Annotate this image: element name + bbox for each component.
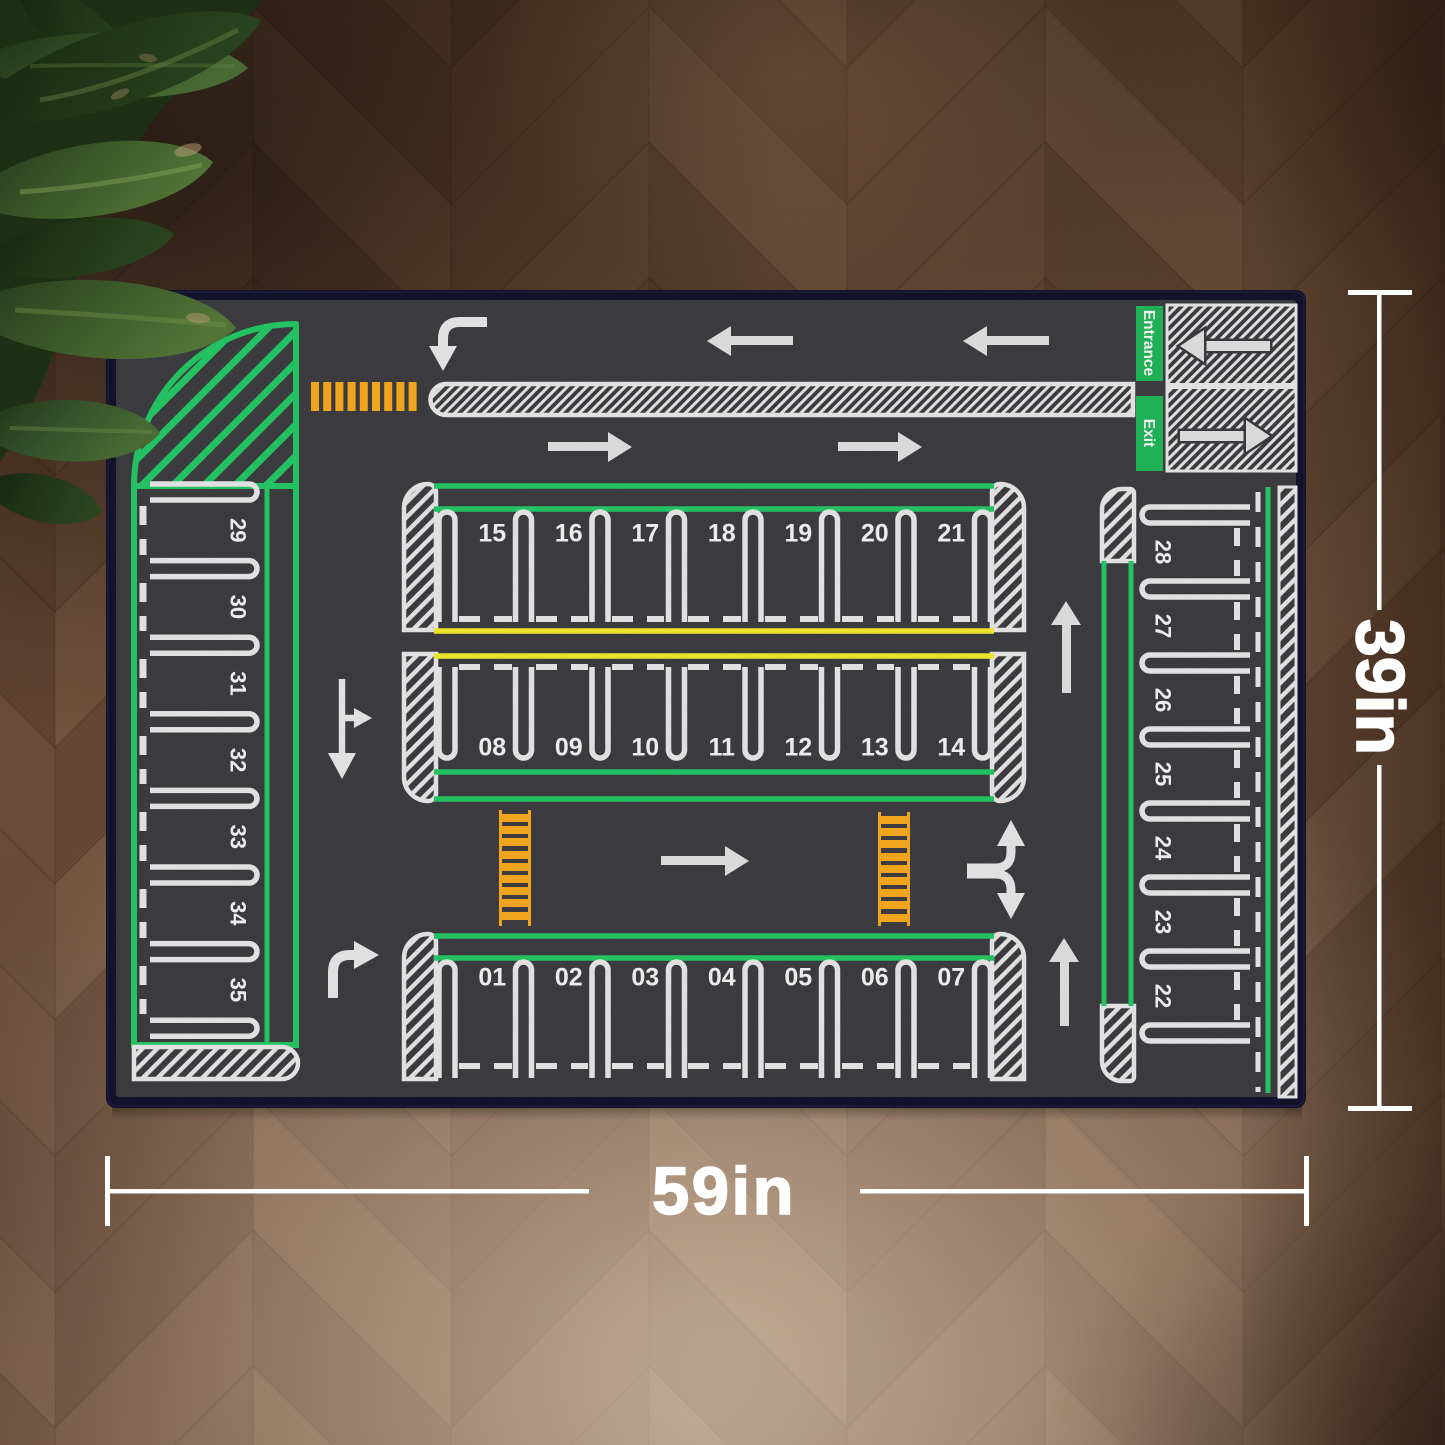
svg-text:18: 18	[708, 520, 736, 548]
svg-text:23: 23	[1151, 910, 1176, 934]
svg-text:30: 30	[226, 595, 251, 619]
svg-text:12: 12	[784, 734, 812, 762]
svg-text:Exit: Exit	[1140, 419, 1157, 447]
svg-text:25: 25	[1151, 762, 1176, 786]
svg-text:22: 22	[1151, 984, 1176, 1008]
svg-text:20: 20	[861, 520, 889, 548]
svg-text:26: 26	[1151, 688, 1176, 712]
svg-text:29: 29	[226, 518, 251, 542]
svg-text:02: 02	[555, 964, 583, 992]
svg-text:03: 03	[631, 964, 659, 992]
svg-text:06: 06	[861, 964, 889, 992]
svg-text:28: 28	[1151, 540, 1176, 564]
svg-text:24: 24	[1151, 836, 1176, 861]
svg-text:10: 10	[631, 734, 659, 762]
svg-text:04: 04	[708, 964, 736, 992]
svg-text:07: 07	[937, 964, 965, 992]
svg-text:27: 27	[1151, 614, 1176, 638]
svg-text:21: 21	[937, 520, 965, 548]
svg-text:59in: 59in	[652, 1154, 796, 1229]
svg-text:34: 34	[226, 901, 251, 926]
svg-text:16: 16	[555, 520, 583, 548]
svg-text:31: 31	[226, 671, 251, 695]
svg-text:17: 17	[631, 520, 659, 548]
svg-text:05: 05	[784, 964, 812, 992]
svg-text:13: 13	[861, 734, 889, 762]
svg-text:Entrance: Entrance	[1140, 310, 1157, 377]
svg-text:15: 15	[478, 520, 506, 548]
svg-text:35: 35	[226, 978, 251, 1002]
svg-text:01: 01	[478, 964, 506, 992]
svg-text:39in: 39in	[1342, 619, 1418, 755]
svg-text:14: 14	[937, 734, 965, 762]
svg-text:32: 32	[226, 748, 251, 772]
svg-text:08: 08	[478, 734, 506, 762]
svg-text:33: 33	[226, 824, 251, 848]
svg-text:11: 11	[709, 734, 736, 762]
svg-text:19: 19	[784, 520, 812, 548]
svg-text:09: 09	[555, 734, 583, 762]
